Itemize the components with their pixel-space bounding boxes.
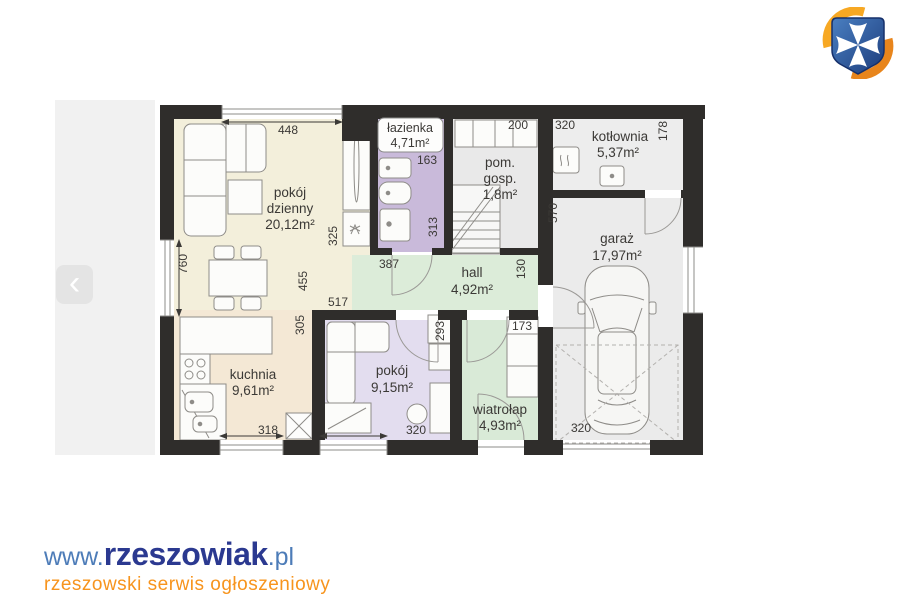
page: ‹	[0, 0, 900, 609]
stove	[180, 354, 210, 384]
dim-570: 570	[546, 203, 560, 223]
room-boiler-name: kotłownia	[592, 129, 649, 144]
crest-svg	[822, 7, 894, 79]
dim-163: 163	[417, 153, 437, 167]
car-top-view	[578, 266, 656, 434]
dim-200: 200	[508, 118, 528, 132]
dim-173: 173	[512, 319, 532, 333]
site-logo-tld: .pl	[268, 543, 294, 571]
floorplan-svg: pokój dzienny 20,12m² łazienka 4,71m² po…	[150, 92, 716, 464]
site-logo-www: www.	[44, 543, 104, 571]
rzeszow-crest-icon	[822, 7, 894, 79]
bathroom-fixtures	[379, 158, 411, 241]
garage-door-opening	[563, 444, 650, 449]
room-small-area: 9,15m²	[371, 380, 414, 395]
dim-320-garage: 320	[571, 421, 591, 435]
room-entry-name: wiatrołap	[472, 402, 527, 417]
washing-machine	[380, 209, 410, 241]
room-hall-name: hall	[461, 265, 482, 280]
dim-293: 293	[433, 321, 447, 341]
dining-table	[209, 260, 267, 296]
site-logo[interactable]: www.rzeszowiak.pl rzeszowski serwis ogło…	[44, 538, 330, 595]
room-garage-area: 17,97m²	[592, 248, 642, 263]
room-kitchen-name: kuchnia	[230, 367, 277, 382]
room-bathroom-name: łazienka	[387, 121, 433, 135]
room-living-area: 20,12m²	[265, 217, 315, 232]
dim-305: 305	[293, 315, 307, 335]
toilet	[379, 182, 411, 204]
entrance-opening	[478, 440, 524, 455]
window-garage-right	[683, 247, 703, 313]
room-utility-name-2: gosp.	[483, 171, 516, 186]
room-kitchen-area: 9,61m²	[232, 383, 275, 398]
room-garage-name: garaż	[600, 231, 634, 246]
room-hall-area: 4,92m²	[451, 282, 494, 297]
site-logo-tagline: rzeszowski serwis ogłoszeniowy	[44, 575, 330, 595]
room-entry-area: 4,93m²	[479, 418, 522, 433]
dim-387: 387	[379, 257, 399, 271]
room-bathroom-area: 4,71m²	[391, 136, 430, 150]
site-logo-name: rzeszowiak	[104, 536, 268, 572]
window-top	[222, 105, 342, 119]
dim-320-boiler: 320	[555, 118, 575, 132]
dim-325: 325	[326, 226, 340, 246]
dim-313: 313	[426, 217, 440, 237]
boiler-icon	[553, 147, 579, 173]
window-kitchen	[220, 440, 283, 455]
dim-130: 130	[514, 259, 528, 279]
dim-517: 517	[328, 295, 348, 309]
window-small-room	[320, 440, 387, 455]
room-living-name-2: dzienny	[267, 201, 314, 216]
kitchen-counter	[180, 317, 272, 354]
dim-178: 178	[656, 121, 670, 141]
stool	[407, 404, 427, 424]
room-small-name: pokój	[376, 363, 408, 378]
sink	[185, 392, 213, 412]
room-living-name-1: pokój	[274, 185, 306, 200]
dim-320-room: 320	[406, 423, 426, 437]
room-utility-area: 1,8m²	[483, 187, 518, 202]
prev-image-button[interactable]: ‹	[56, 265, 93, 304]
site-logo-domain: www.rzeszowiak.pl	[44, 552, 294, 569]
room-boiler-area: 5,37m²	[597, 145, 640, 160]
dim-448: 448	[278, 123, 298, 137]
window-left	[160, 240, 174, 316]
dim-455: 455	[296, 271, 310, 291]
floorplan-photo[interactable]: pokój dzienny 20,12m² łazienka 4,71m² po…	[150, 92, 716, 464]
room-utility-name-1: pom.	[485, 155, 515, 170]
chevron-left-icon: ‹	[69, 266, 80, 300]
dim-318: 318	[258, 423, 278, 437]
washbasin	[379, 158, 411, 178]
dim-760: 760	[176, 254, 190, 274]
